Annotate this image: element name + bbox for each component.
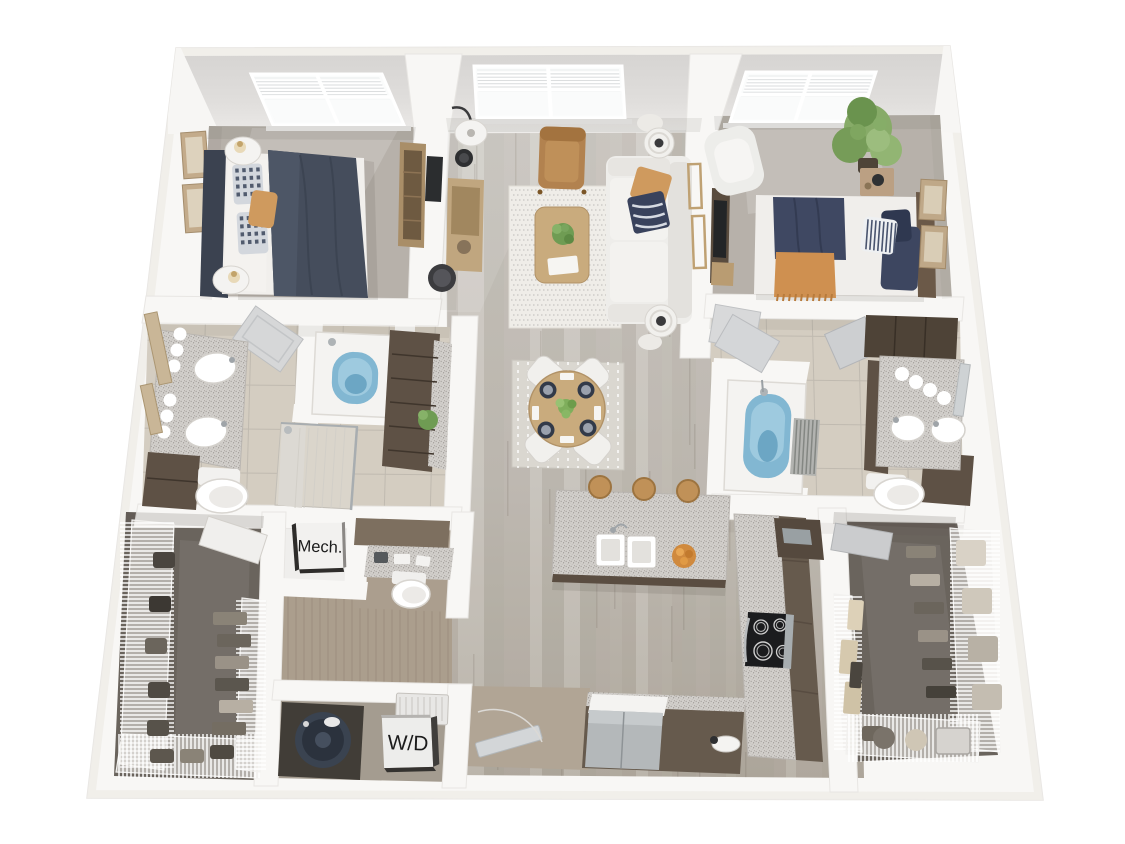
svg-text:W/D: W/D: [387, 731, 429, 755]
svg-text:Mech.: Mech.: [297, 537, 343, 557]
